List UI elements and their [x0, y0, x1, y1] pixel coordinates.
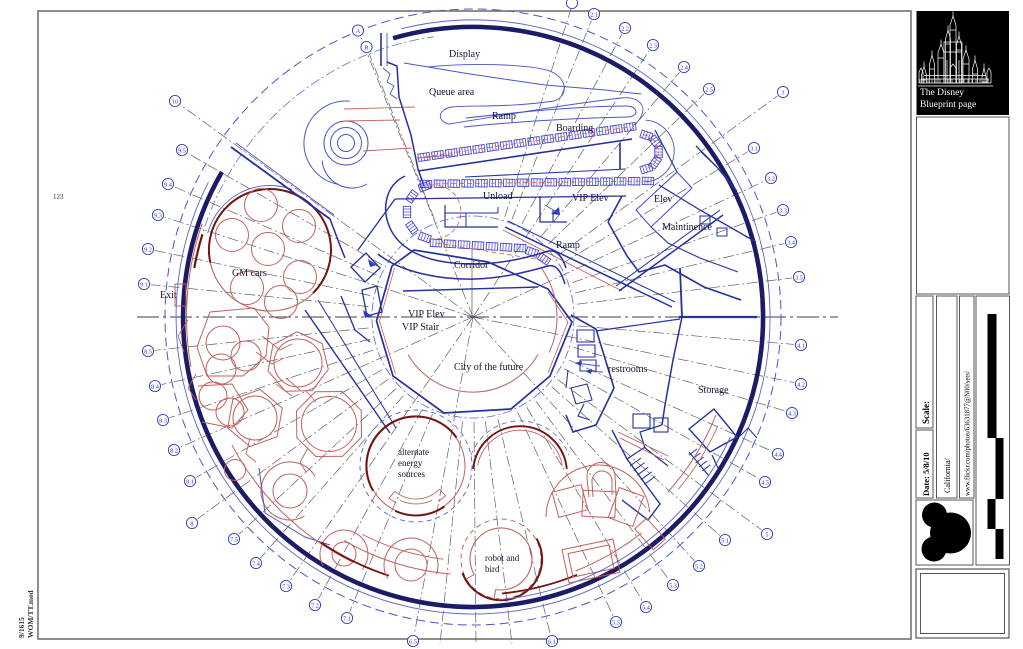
svg-text:4.2: 4.2 [797, 381, 805, 388]
svg-text:Ramp: Ramp [556, 240, 580, 251]
svg-text:Maintinence: Maintinence [662, 222, 713, 233]
svg-text:9.5: 9.5 [178, 147, 186, 154]
svg-text:5.1: 5.1 [721, 537, 729, 544]
svg-text:Ramp: Ramp [492, 111, 516, 122]
svg-text:www.flickr.com/photos/63631877: www.flickr.com/photos/63631877@N00/sets/ [965, 371, 972, 496]
svg-text:3.2: 3.2 [767, 175, 775, 182]
svg-text:Exit: Exit [160, 290, 177, 301]
svg-text:energy: energy [398, 458, 423, 468]
svg-text:bird: bird [485, 564, 500, 574]
svg-text:4.4: 4.4 [774, 451, 783, 458]
svg-text:2.2: 2.2 [621, 25, 629, 32]
svg-text:sources: sources [398, 469, 425, 479]
svg-text:3.1: 3.1 [750, 145, 758, 152]
svg-text:10: 10 [172, 98, 178, 105]
svg-text:City of the future: City of the future [454, 362, 524, 373]
svg-text:B: B [364, 44, 368, 51]
svg-text:8.1: 8.1 [186, 478, 194, 485]
svg-text:Display: Display [449, 49, 480, 60]
svg-text:Elev: Elev [654, 194, 672, 205]
svg-text:7.2: 7.2 [311, 602, 319, 609]
svg-text:3.4: 3.4 [787, 239, 796, 246]
svg-text:8.2: 8.2 [170, 447, 178, 454]
svg-text:9.3: 9.3 [154, 212, 162, 219]
svg-text:7.1: 7.1 [343, 615, 351, 622]
svg-text:7.5: 7.5 [230, 536, 238, 543]
svg-text:GM cars: GM cars [232, 268, 267, 279]
svg-text:6.1: 6.1 [548, 638, 556, 645]
svg-text:Corridor: Corridor [454, 260, 489, 271]
svg-text:5: 5 [765, 531, 768, 538]
svg-text:5.3: 5.3 [669, 582, 677, 589]
svg-text:7.4: 7.4 [252, 560, 261, 567]
svg-text:3: 3 [781, 89, 784, 96]
svg-text:3.3: 3.3 [779, 207, 787, 214]
svg-text:Unload: Unload [483, 191, 512, 202]
svg-text:VIP Elev: VIP Elev [408, 309, 445, 320]
svg-text:8.4: 8.4 [151, 383, 160, 390]
svg-text:A: A [356, 28, 361, 35]
svg-text:VIP Stair: VIP Stair [402, 322, 440, 333]
svg-text:4.3: 4.3 [788, 410, 796, 417]
svg-text:WOM/TT.med: WOM/TT.med [26, 590, 35, 638]
svg-text:9.1: 9.1 [140, 281, 148, 288]
svg-text:9.4: 9.4 [164, 181, 173, 188]
svg-text:6.5: 6.5 [409, 638, 417, 645]
svg-text:3.5: 3.5 [795, 274, 803, 281]
svg-text:alternate: alternate [398, 447, 429, 457]
svg-text:4.5: 4.5 [761, 479, 769, 486]
svg-text:123: 123 [53, 193, 64, 201]
svg-text:2.1: 2.1 [590, 11, 598, 18]
svg-text:Boarding: Boarding [556, 123, 593, 134]
svg-text:robot and: robot and [485, 553, 520, 563]
svg-text:California/: California/ [943, 458, 952, 493]
svg-text:Date: 5/8/10: Date: 5/8/10 [921, 452, 931, 496]
svg-text:4.1: 4.1 [797, 342, 805, 349]
svg-text:7.3: 7.3 [282, 583, 290, 590]
svg-text:8: 8 [190, 520, 193, 527]
svg-text:Blueprint page: Blueprint page [920, 100, 976, 110]
svg-text:9/1615: 9/1615 [17, 617, 26, 638]
svg-text:9.2: 9.2 [144, 246, 152, 253]
svg-text:VIP Elev: VIP Elev [572, 193, 609, 204]
svg-text:2.3: 2.3 [649, 42, 657, 49]
svg-text:Scale:: Scale: [921, 401, 931, 424]
svg-text:5.5: 5.5 [612, 619, 620, 626]
svg-text:2.5: 2.5 [705, 86, 713, 93]
svg-text:Queue area: Queue area [429, 87, 475, 98]
svg-text:2.4: 2.4 [680, 64, 689, 71]
svg-text:restrooms: restrooms [608, 364, 648, 375]
svg-text:The Disney: The Disney [920, 88, 964, 98]
svg-text:8.5: 8.5 [144, 348, 152, 355]
svg-text:8.3: 8.3 [159, 417, 167, 424]
svg-text:5.2: 5.2 [695, 563, 703, 570]
svg-text:5.4: 5.4 [642, 604, 651, 611]
svg-text:Storage: Storage [698, 385, 729, 396]
